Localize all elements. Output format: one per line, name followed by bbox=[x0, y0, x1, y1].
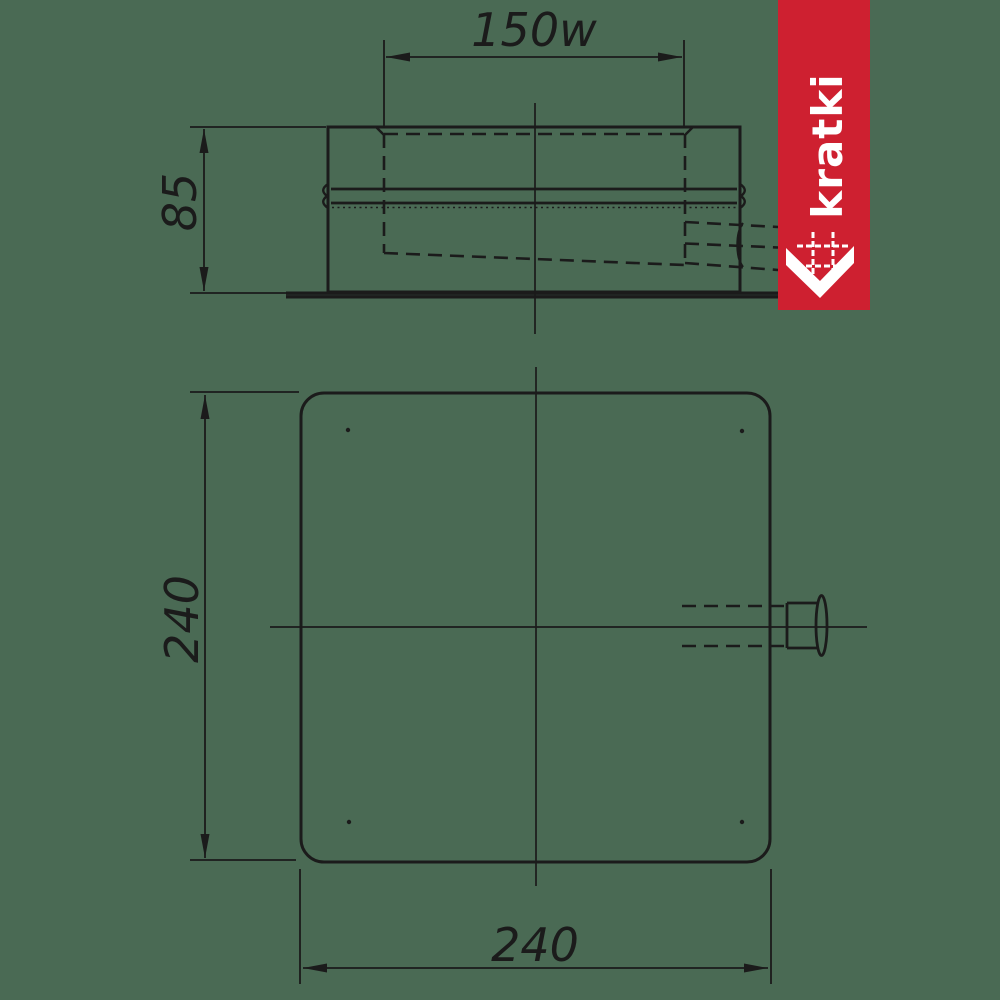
plan-view-outlet-flange bbox=[816, 596, 827, 656]
side-view-bead-lines bbox=[331, 189, 737, 203]
side-view-body-outline bbox=[328, 127, 740, 292]
side-view bbox=[286, 103, 778, 334]
plan-view bbox=[270, 367, 867, 886]
dimension-85-extension-lines bbox=[190, 127, 326, 293]
side-view-hidden-outlet-lines bbox=[685, 222, 778, 270]
kratki-logo-banner: kratki bbox=[778, 0, 870, 310]
side-view-dimensions: 150w 85 bbox=[153, 3, 684, 293]
plan-view-outlet-pipe bbox=[787, 603, 817, 648]
dimension-85-label: 85 bbox=[153, 173, 207, 232]
dimension-240h-arrow-left bbox=[303, 964, 327, 973]
grate-arrow-down-icon bbox=[786, 232, 854, 298]
dimension-150w-label: 150w bbox=[471, 3, 597, 57]
brand-name-text: kratki bbox=[803, 73, 852, 218]
rivet-dot bbox=[740, 429, 744, 433]
dimension-240-vertical: 240 bbox=[155, 392, 299, 860]
kratki-logo-svg: kratki bbox=[778, 0, 870, 310]
plan-view-dimensions: 240 240 bbox=[155, 392, 771, 984]
dimension-240v-arrow-bottom bbox=[201, 834, 210, 858]
dimension-240-horizontal: 240 bbox=[300, 869, 771, 984]
dimension-85: 85 bbox=[153, 127, 326, 293]
plan-view-rivet-dots bbox=[346, 428, 744, 824]
dimension-150w-arrow-left bbox=[386, 53, 410, 62]
arrow-chevron bbox=[786, 246, 854, 298]
dimension-85-arrow-top bbox=[200, 129, 209, 153]
side-view-base-plate-edge bbox=[286, 293, 778, 297]
dimension-240v-arrow-top bbox=[201, 395, 210, 419]
dimension-150w: 150w bbox=[384, 3, 684, 128]
dimension-240v-label: 240 bbox=[155, 575, 209, 663]
technical-drawing-canvas: 150w 85 bbox=[0, 0, 1000, 1000]
dimension-240h-arrow-right bbox=[744, 964, 768, 973]
rivet-dot bbox=[346, 428, 350, 432]
dimension-240h-label: 240 bbox=[491, 918, 579, 972]
rivet-dot bbox=[347, 820, 351, 824]
plan-view-centerlines bbox=[270, 367, 867, 886]
dimension-85-arrow-bottom bbox=[200, 267, 209, 291]
rivet-dot bbox=[740, 820, 744, 824]
dimension-150w-arrow-right bbox=[658, 53, 682, 62]
